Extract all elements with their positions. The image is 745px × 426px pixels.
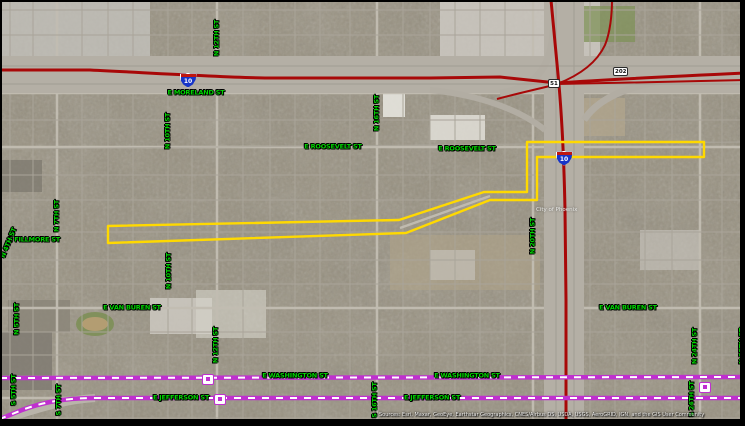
city-boundary-label: City of Phoenix bbox=[536, 207, 577, 213]
map-canvas bbox=[0, 0, 745, 426]
frame-edge-bottom bbox=[0, 419, 745, 426]
map-frame: E MORELAND STE ROOSEVELT STE ROOSEVELT S… bbox=[0, 0, 745, 426]
satellite-map[interactable]: E MORELAND STE ROOSEVELT STE ROOSEVELT S… bbox=[0, 0, 745, 426]
frame-edge-right bbox=[740, 0, 745, 426]
map-attribution: Sources: Esri, Maxar, GeoEye, Earthstar … bbox=[379, 413, 737, 419]
frame-edge-top bbox=[0, 0, 745, 2]
frame-edge-left bbox=[0, 0, 2, 426]
